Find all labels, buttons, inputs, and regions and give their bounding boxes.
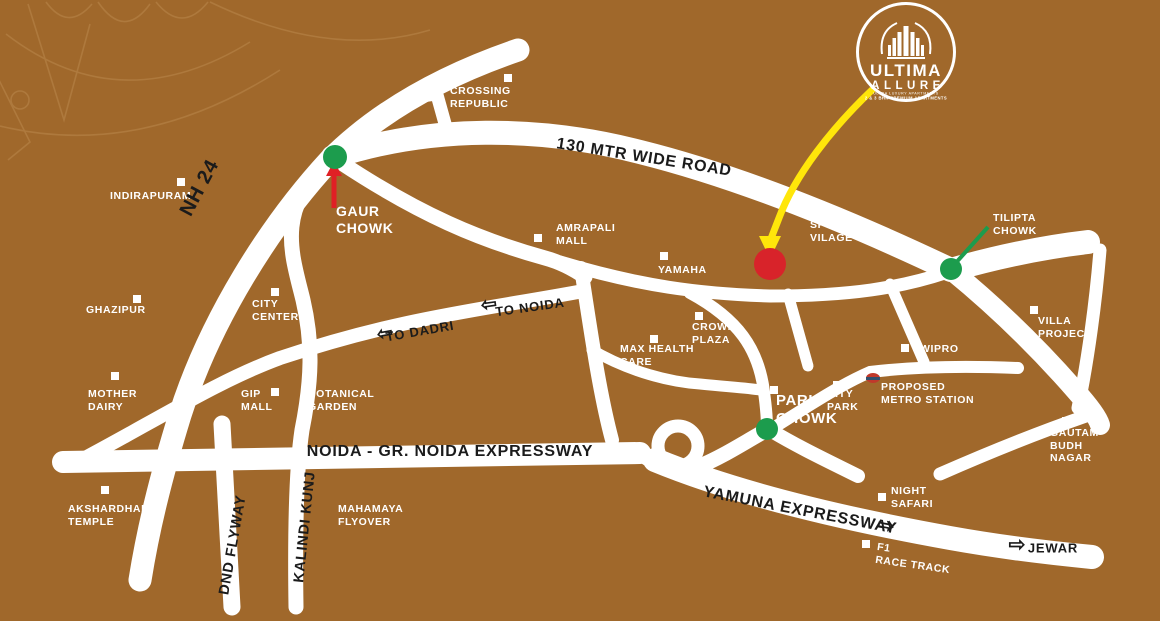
label-line: TILIPTA [993,212,1037,225]
road-label-130-mtr-wide-road: 130 MTR WIDE ROAD [555,135,733,180]
metro-icon [866,373,880,383]
marker-square-ghazipur [133,295,141,303]
road-label-kalindi-kunj: KALINDI KUNJ [291,471,319,584]
marker-square-city-center [271,288,279,296]
road-label-yamuna-expressway: YAMUNA EXPRESSWAY [702,483,899,538]
label-line: GHAZIPUR [86,304,146,317]
to-dadri-arrow: ⇦ [376,323,395,344]
label-line: PROJECT [1038,328,1092,341]
jewar-arrow: ⇨ [1009,535,1026,555]
label-line: MOTHER [88,388,137,401]
label-wipro: WIPRO [920,343,959,356]
to-noida-arrow: ⇦ [480,294,498,315]
label-line: NIGHT [891,485,933,498]
marker-square-gautam-budh-nagar [1062,417,1070,425]
gaur-chowk-dot [323,145,347,169]
label-botanical-garden: BOTANICALGARDEN [308,388,374,413]
label-proposed-metro-station: PROPOSEDMETRO STATION [881,381,974,406]
label-line: YAMAHA [658,264,707,277]
label-line: CITY [252,298,299,311]
yamuna-arrow: ⇨ [876,515,896,538]
label-tilipta-chowk: TILIPTACHOWK [993,212,1037,237]
road-label-noida-gr-noida-expressway: NOIDA - GR. NOIDA EXPRESSWAY [307,443,593,461]
label-line: CITY [827,388,858,401]
label-line: AMRAPALI [556,222,615,235]
marker-square-villa-project [1030,306,1038,314]
marker-square-gip-mall [271,388,279,396]
label-line: NAGAR [1050,452,1099,465]
label-gaur-chowk: GAURCHOWK [336,203,393,237]
label-amrapali-mall: AMRAPALIMALL [556,222,615,247]
label-mother-dairy: MOTHERDAIRY [88,388,137,413]
label-akshardham-temple: AKSHARDHAMTEMPLE [68,503,150,528]
label-villa-project: VILLAPROJECT [1038,315,1092,340]
label-mahamaya-flyover: MAHAMAYAFLYOVER [338,503,403,528]
road-label-nh-24: NH 24 [176,156,225,220]
labels-overlay: CROSSINGREPUBLICINDIRAPURAMGAURCHOWKAMRA… [0,0,1160,621]
marker-square-sports-vilage [809,208,817,216]
project-location-dot [754,248,786,280]
label-line: DAIRY [88,401,137,414]
label-yamaha: YAMAHA [658,264,707,277]
label-line: SAFARI [891,498,933,511]
label-crossing-republic: CROSSINGREPUBLIC [450,85,511,110]
label-line: CARE [620,356,694,369]
marker-square-pari-chowk [770,386,778,394]
label-line: CENTER [252,311,299,324]
marker-square-amrapali-mall [534,234,542,242]
label-ghazipur: GHAZIPUR [86,304,146,317]
label-line: BUDH [1050,440,1099,453]
label-line: GAUTAM [1050,427,1099,440]
marker-square-yamaha [660,252,668,260]
label-line: VILAGE [810,232,857,245]
label-line: VILLA [1038,315,1092,328]
label-line: CHOWK [336,220,393,237]
label-line: CHOWK [993,225,1037,238]
label-gip-mall: GIPMALL [241,388,273,413]
marker-square-mother-dairy [111,372,119,380]
pari-chowk-dot [756,418,778,440]
marker-square-indirapuram [177,178,185,186]
road-label-dnd-flyway: DND FLYWAY [216,494,249,596]
metro-icon-bar [866,377,880,380]
label-crown-plaza: CROWNPLAZA [692,321,736,346]
marker-square-f1-race-track [862,540,870,548]
label-line: MAHAMAYA [338,503,403,516]
label-sports-vilage: SPORTSVILAGE [810,219,857,244]
road-label-jewar: JEWAR [1028,541,1078,556]
road-label-to-noida: TO NOIDA [494,295,565,320]
label-line: SPORTS [810,219,857,232]
label-line: AKSHARDHAM [68,503,150,516]
marker-square-city-park [833,381,841,389]
label-line: CROWN [692,321,736,334]
label-line: MALL [556,235,615,248]
label-line: GIP [241,388,273,401]
marker-square-crown-plaza [695,312,703,320]
label-max-health-care: MAX HEALTHCARE [620,343,694,368]
road-label-to-dadri: TO DADRI [385,318,456,345]
label-night-safari: NIGHTSAFARI [891,485,933,510]
marker-square-crossing-republic [504,74,512,82]
marker-square-wipro [901,344,909,352]
label-line: PLAZA [692,334,736,347]
label-line: BOTANICAL [308,388,374,401]
label-city-park: CITYPARK [827,388,858,413]
label-gautam-budh-nagar: GAUTAMBUDHNAGAR [1050,427,1099,465]
marker-square-max-health-care [650,335,658,343]
marker-square-night-safari [878,493,886,501]
label-line: PROPOSED [881,381,974,394]
label-line: GAUR [336,203,393,220]
label-line: PARK [827,401,858,414]
label-line: TEMPLE [68,516,150,529]
label-city-center: CITYCENTER [252,298,299,323]
label-line: FLYOVER [338,516,403,529]
label-line: WIPRO [920,343,959,356]
tilipta-chowk-dot [940,258,962,280]
label-line: MAX HEALTH [620,343,694,356]
label-line: CROSSING [450,85,511,98]
label-line: REPUBLIC [450,98,511,111]
location-map: ULTIMA ALLURE ULTRA LUXURY APARTMENTS 2 … [0,0,1160,621]
marker-square-akshardham-temple [101,486,109,494]
label-f1-race-track: F1RACE TRACK [874,541,952,576]
label-line: METRO STATION [881,394,974,407]
label-line: MALL [241,401,273,414]
label-line: GARDEN [308,401,374,414]
